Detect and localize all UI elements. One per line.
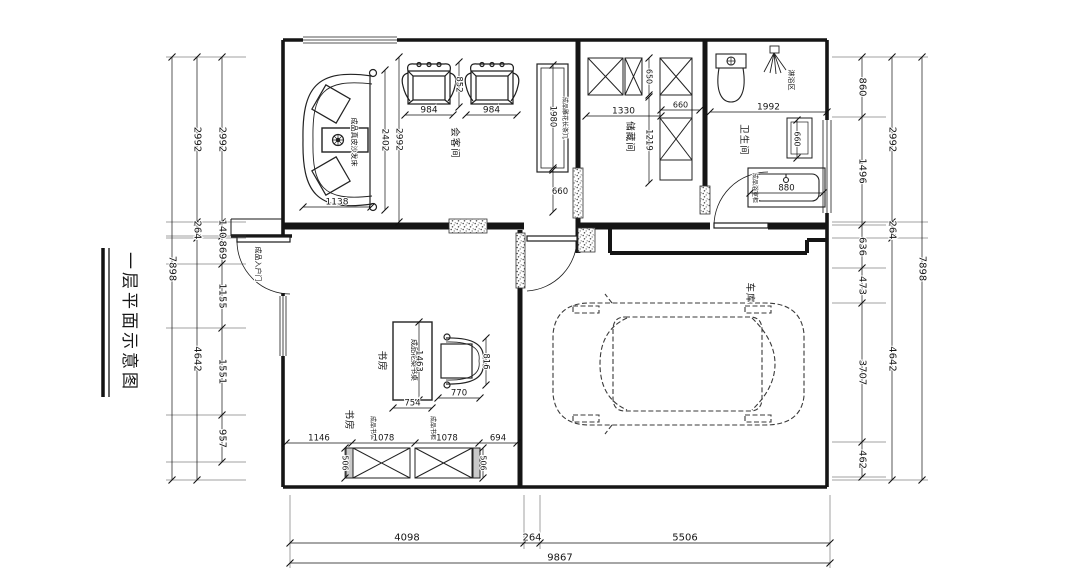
dim-label: 140 (217, 219, 228, 238)
sofa (303, 70, 377, 211)
dim-label: 694 (490, 434, 506, 444)
dim-label: 1992 (757, 103, 780, 113)
dim-label: 650 (645, 69, 654, 84)
dim-label: 9867 (547, 553, 572, 564)
dim-label: 4642 (192, 346, 203, 371)
room-label-study-1: 书房 (376, 350, 388, 371)
dim-label: 816 (481, 353, 491, 369)
dim-label: 660 (552, 187, 568, 197)
dim-label: 1146 (308, 434, 330, 444)
dim-label: 1463 (414, 350, 424, 372)
dim-label: 770 (451, 389, 467, 399)
dim-label: 462 (857, 450, 868, 469)
dim-label: 660 (793, 131, 802, 146)
doors (237, 172, 768, 294)
dim-label: 1330 (612, 107, 635, 117)
dim-label: 1138 (326, 198, 349, 208)
dim-label: 754 (404, 399, 420, 409)
dim-label: 1496 (857, 158, 868, 183)
label-sofa: 成品真皮沙发床 (350, 118, 359, 167)
dim-label: 2992 (887, 127, 898, 152)
garage-door (527, 236, 577, 291)
armchair-2 (465, 63, 519, 105)
dim-label: 1155 (217, 283, 228, 308)
dim-label: 264 (522, 533, 541, 544)
room-label-bath: 卫生间 (738, 124, 750, 156)
dim-label: 473 (857, 276, 868, 295)
dim-label: 2992 (192, 127, 203, 152)
walls (231, 40, 827, 487)
room-label-study-2: 书房 (343, 409, 355, 430)
dim-label: 7898 (167, 256, 178, 281)
dim-label: 636 (857, 237, 868, 256)
floor-plan-canvas: 会客间 储藏间 卫生间 书房 书房 车库 淋浴区 成品真皮沙发床 成品雕花长条几… (0, 0, 1074, 576)
shower-head-icon (764, 46, 786, 74)
dim-label: 2992 (217, 127, 228, 152)
dim-label: 264 (192, 220, 203, 239)
dim-label: 4098 (394, 533, 419, 544)
dim-label: 506 (479, 455, 488, 470)
dim-label: 984 (420, 106, 437, 116)
dim-label: 880 (778, 184, 794, 194)
dim-label: 852 (454, 76, 464, 92)
page-title: 一层平面示意图 (119, 252, 139, 392)
label-console: 成品雕花长条几 (561, 97, 569, 139)
label-shower-zone: 淋浴区 (787, 70, 796, 91)
dim-label: 660 (673, 101, 688, 110)
room-label-meeting: 会客间 (449, 127, 461, 159)
bookcases (346, 448, 480, 478)
dim-label: 3707 (857, 360, 868, 385)
dim-label: 1078 (436, 434, 458, 444)
car (553, 294, 804, 434)
dim-label: 984 (483, 106, 500, 116)
bath-door (714, 172, 768, 228)
dim-label: 264 (887, 220, 898, 239)
dim-label: 7898 (917, 256, 928, 281)
toilet (716, 54, 746, 102)
drawing-title: 一层平面示意图 (103, 248, 139, 397)
dim-label: 1219 (644, 129, 654, 151)
flower-decor-icon (333, 135, 344, 146)
room-label-storage: 储藏间 (624, 121, 636, 153)
entry-door (237, 237, 290, 294)
label-vanity: 成品浴室柜 (751, 173, 759, 203)
dim-label: 2402 (380, 129, 390, 152)
dim-label: 860 (857, 77, 868, 96)
dim-label: 5506 (672, 533, 697, 544)
dim-label: 2992 (394, 128, 404, 151)
desk-chair (441, 334, 483, 388)
dim-label: 869 (217, 240, 228, 259)
dim-label: 1078 (373, 434, 395, 444)
dim-label: 1551 (217, 359, 228, 384)
dim-label: 506 (341, 455, 350, 470)
label-entry-door: 成品入户门 (254, 247, 263, 282)
dim-label: 1980 (548, 106, 558, 128)
dim-label: 957 (217, 429, 228, 448)
floor-plan-page: 会客间 储藏间 卫生间 书房 书房 车库 淋浴区 成品真皮沙发床 成品雕花长条几… (0, 0, 1074, 576)
room-label-garage: 车库 (744, 282, 756, 303)
armchair-1 (402, 63, 456, 105)
dim-label: 4642 (887, 346, 898, 371)
storage-cabinets (588, 58, 692, 180)
